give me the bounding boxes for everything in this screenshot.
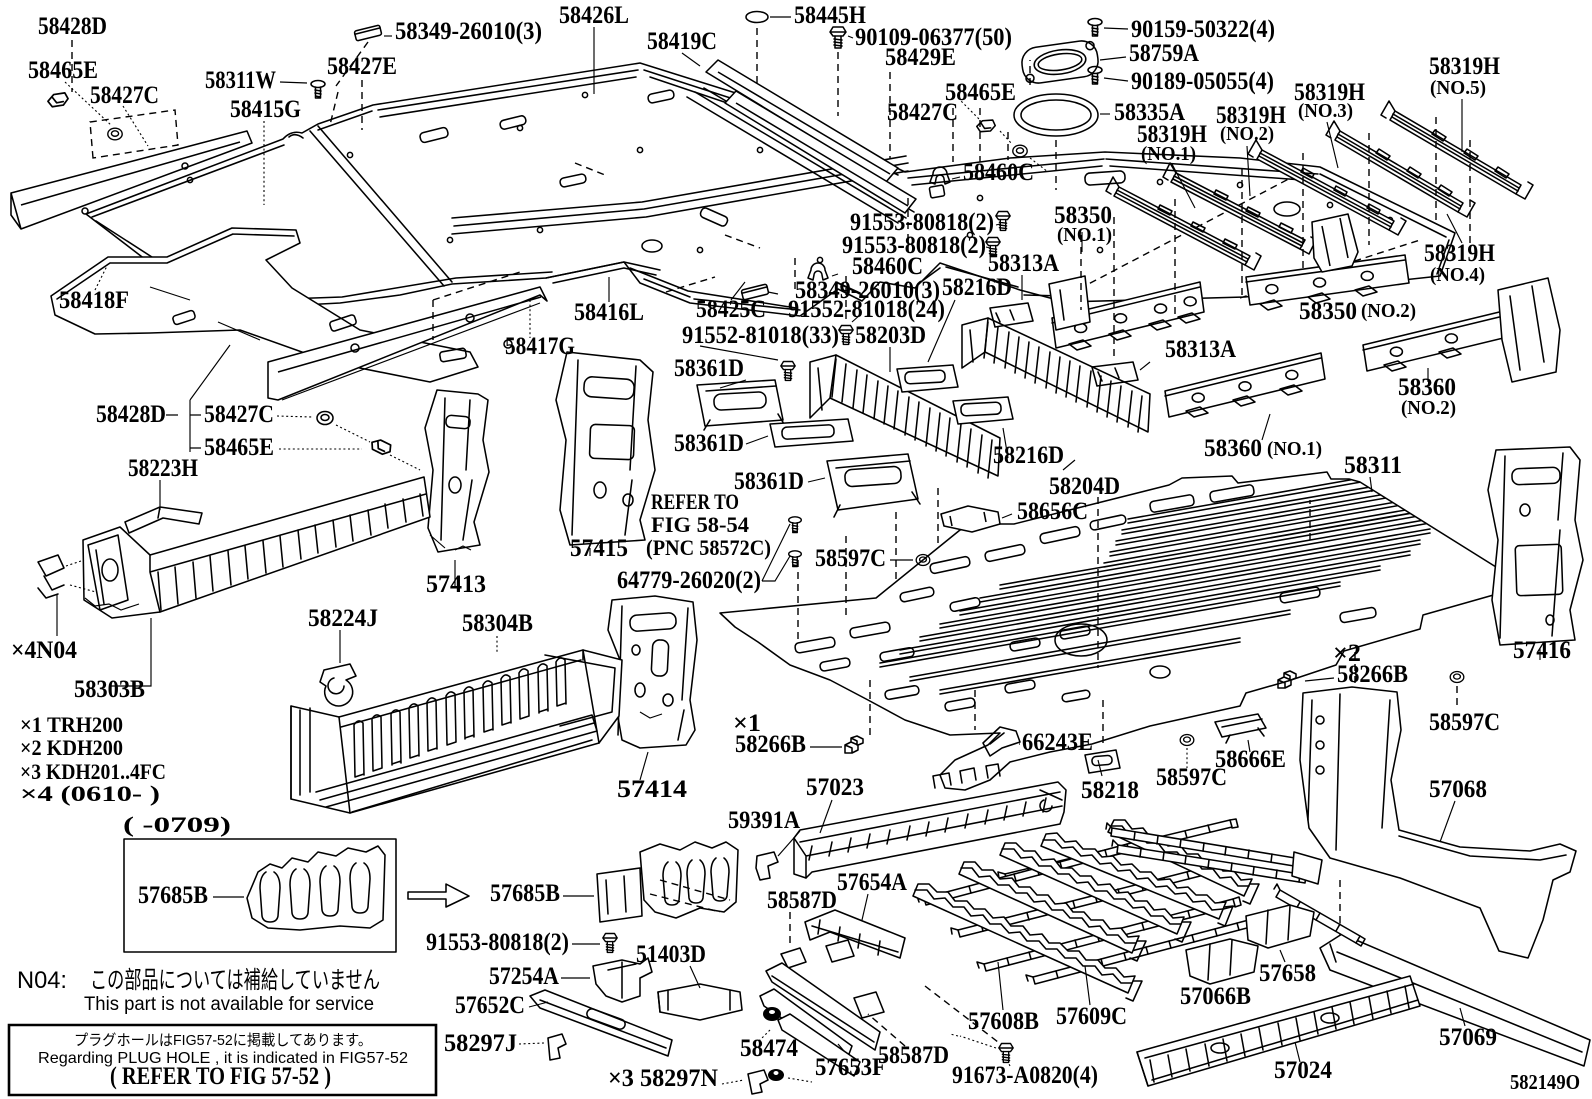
svg-text:57416: 57416 [1513,637,1571,664]
svg-text:91552-81018(24): 91552-81018(24) [788,296,945,323]
svg-text:58759A: 58759A [1129,40,1199,67]
svg-text:58303B: 58303B [74,676,145,703]
svg-text:×3 58297N: ×3 58297N [608,1065,718,1092]
svg-text:58429E: 58429E [885,44,956,71]
svg-text:58428D: 58428D [38,13,107,40]
svg-text:58425C: 58425C [696,296,766,323]
svg-text:(NO.1): (NO.1) [1267,438,1322,460]
svg-text:57254A: 57254A [489,963,559,990]
svg-text:58319H: 58319H [1429,53,1500,80]
svg-text:58428D: 58428D [96,401,166,428]
svg-text:58297J: 58297J [444,1030,517,1057]
svg-text:57415: 57415 [570,535,628,562]
svg-text:58427C: 58427C [887,99,958,126]
svg-text:58224J: 58224J [308,605,378,632]
svg-text:90189-05055(4): 90189-05055(4) [1131,68,1274,95]
svg-text:66243E: 66243E [1022,729,1093,756]
svg-text:58474: 58474 [740,1035,798,1062]
svg-text:(NO.4): (NO.4) [1430,264,1485,286]
svg-text:57685B: 57685B [138,882,208,909]
svg-text:58204D: 58204D [1049,473,1120,500]
svg-text:×4N04: ×4N04 [11,637,77,664]
svg-text:58656C: 58656C [1017,498,1088,525]
svg-text:この部品については補給していません: この部品については補給していません [90,967,380,994]
svg-text:×1: ×1 [733,710,761,737]
svg-text:57413: 57413 [426,571,486,598]
svg-text:57066B: 57066B [1180,983,1251,1010]
svg-text:( REFER TO FIG 57-52 ): ( REFER TO FIG 57-52 ) [110,1063,331,1090]
svg-text:58416L: 58416L [574,299,644,326]
svg-text:57068: 57068 [1429,776,1487,803]
svg-text:58216D: 58216D [993,442,1064,469]
svg-text:90159-50322(4): 90159-50322(4) [1131,16,1275,43]
svg-text:(NO.2): (NO.2) [1401,397,1456,419]
svg-text:This part is not available for: This part is not available for service [84,994,374,1015]
svg-text:58313A: 58313A [988,250,1059,277]
svg-text:58350: 58350 [1299,298,1357,325]
svg-text:57658: 57658 [1259,960,1316,987]
svg-text:58319H: 58319H [1424,240,1495,267]
svg-text:58203D: 58203D [855,322,926,349]
svg-text:57069: 57069 [1439,1024,1497,1051]
svg-text:×4 (0610- ): ×4 (0610- ) [20,781,160,806]
svg-text:(NO.2): (NO.2) [1220,123,1274,145]
svg-text:58427E: 58427E [327,53,397,80]
svg-text:×2: ×2 [1333,640,1361,667]
svg-text:582149O: 582149O [1510,1070,1580,1094]
svg-text:58313A: 58313A [1165,336,1236,363]
svg-text:58360: 58360 [1204,435,1262,462]
svg-text:58460C: 58460C [963,159,1034,186]
svg-text:57685B: 57685B [490,880,560,907]
svg-text:58415G: 58415G [230,96,301,123]
svg-text:(NO.5): (NO.5) [1430,77,1486,99]
svg-text:58426L: 58426L [559,2,629,29]
svg-text:58349-26010(3): 58349-26010(3) [395,18,542,45]
svg-text:58311: 58311 [1344,452,1402,479]
svg-text:58597C: 58597C [1156,764,1227,791]
svg-text:64779-26020(2): 64779-26020(2) [617,567,761,594]
svg-text:58427C: 58427C [90,82,159,109]
svg-text:58597C: 58597C [1429,709,1500,736]
svg-text:91553-80818(2): 91553-80818(2) [426,929,569,956]
svg-text:57652C: 57652C [455,992,525,1019]
svg-text:58427C: 58427C [204,401,274,428]
svg-text:91552-81018(33): 91552-81018(33) [682,322,839,349]
svg-text:(NO.1): (NO.1) [1141,143,1196,165]
svg-text:58465E: 58465E [204,434,274,461]
svg-text:58361D: 58361D [674,430,744,457]
svg-text:(NO.1): (NO.1) [1057,224,1112,246]
svg-text:57653F: 57653F [815,1054,886,1081]
svg-text:×1 TRH200: ×1 TRH200 [20,712,123,737]
svg-text:58361D: 58361D [674,355,744,382]
svg-text:57609C: 57609C [1056,1003,1127,1030]
svg-text:58587D: 58587D [878,1042,949,1069]
svg-text:91673-A0820(4): 91673-A0820(4) [952,1062,1098,1089]
svg-text:REFER TO: REFER TO [651,489,739,514]
svg-text:57023: 57023 [806,774,864,801]
svg-text:(NO.2): (NO.2) [1361,300,1416,322]
svg-text:58460C: 58460C [852,253,923,280]
svg-text:58419C: 58419C [647,28,717,55]
svg-text:58417G: 58417G [505,333,575,360]
svg-text:( -0709): ( -0709) [123,812,231,837]
svg-text:FIG 58-54: FIG 58-54 [651,512,749,537]
svg-text:51403D: 51403D [636,941,706,968]
svg-text:58223H: 58223H [128,455,198,482]
svg-text:(PNC 58572C): (PNC 58572C) [646,535,771,560]
svg-text:×2 KDH200: ×2 KDH200 [20,735,123,760]
svg-text:57414: 57414 [617,776,688,803]
svg-text:58304B: 58304B [462,610,533,637]
svg-text:58218: 58218 [1081,777,1139,804]
svg-text:プラグホールはFIG57-52に掲載してあります。: プラグホールはFIG57-52に掲載してあります。 [74,1032,372,1049]
svg-text:58587D: 58587D [767,887,837,914]
svg-text:59391A: 59391A [728,807,800,834]
svg-text:57654A: 57654A [837,869,907,896]
svg-text:58361D: 58361D [734,468,804,495]
svg-text:N04:: N04: [17,967,67,994]
svg-text:58465E: 58465E [28,57,98,84]
svg-text:58311W: 58311W [205,67,276,94]
svg-text:58216D: 58216D [942,274,1012,301]
svg-text:58418F: 58418F [59,287,129,314]
svg-text:(NO.3): (NO.3) [1298,100,1353,122]
svg-text:57608B: 57608B [968,1008,1039,1035]
svg-text:57024: 57024 [1274,1057,1332,1084]
svg-text:58597C: 58597C [815,545,886,572]
